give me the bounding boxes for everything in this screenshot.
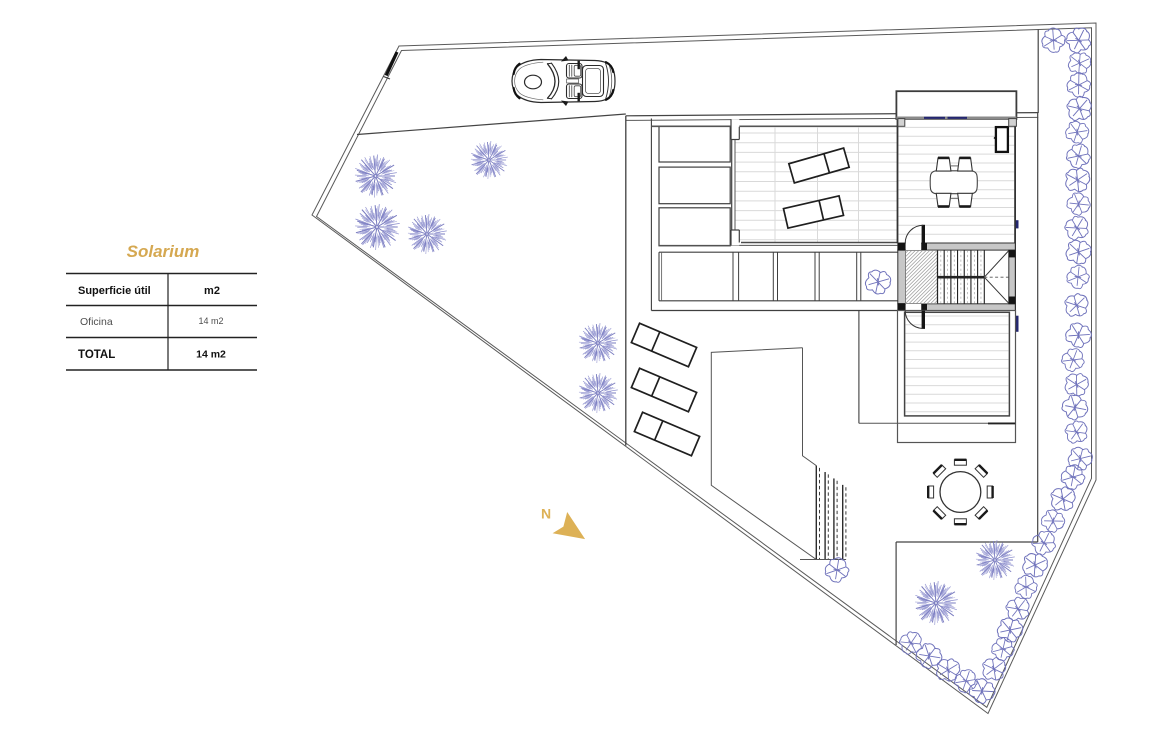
svg-text:N: N [541,506,551,522]
svg-text:TOTAL: TOTAL [78,349,115,361]
svg-text:14 m2: 14 m2 [198,316,223,326]
svg-text:Superficie útil: Superficie útil [78,285,151,297]
svg-text:Solarium: Solarium [127,242,200,261]
svg-text:Oficina: Oficina [80,316,113,328]
svg-text:14 m2: 14 m2 [196,349,226,361]
svg-text:m2: m2 [204,285,220,297]
